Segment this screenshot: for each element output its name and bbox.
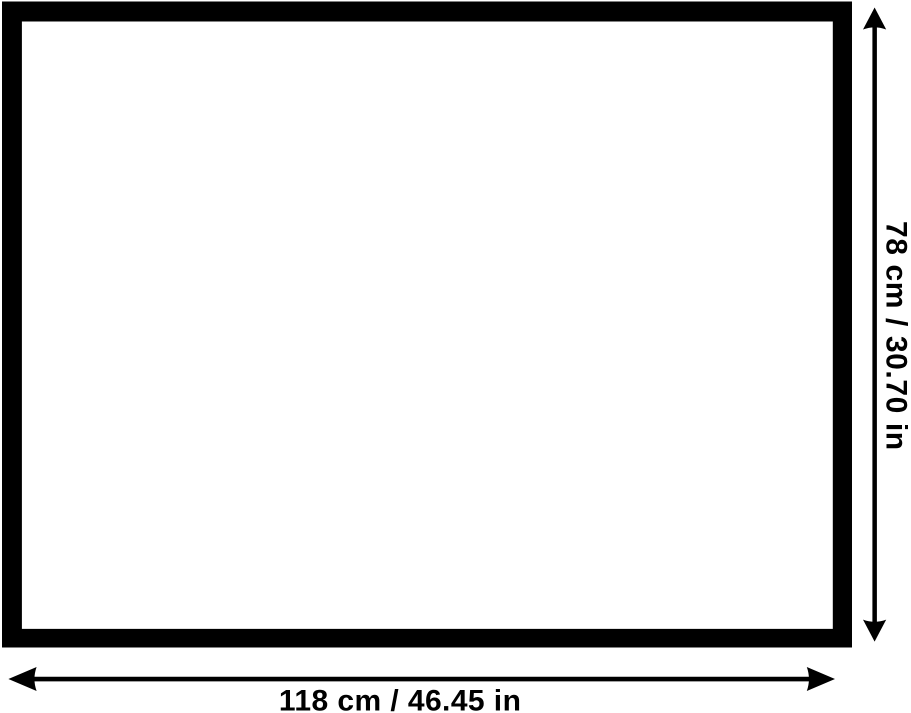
svg-text:118 cm / 46.45 in: 118 cm / 46.45 in: [279, 685, 521, 713]
svg-text:78 cm / 30.70 in: 78 cm / 30.70 in: [879, 221, 911, 450]
